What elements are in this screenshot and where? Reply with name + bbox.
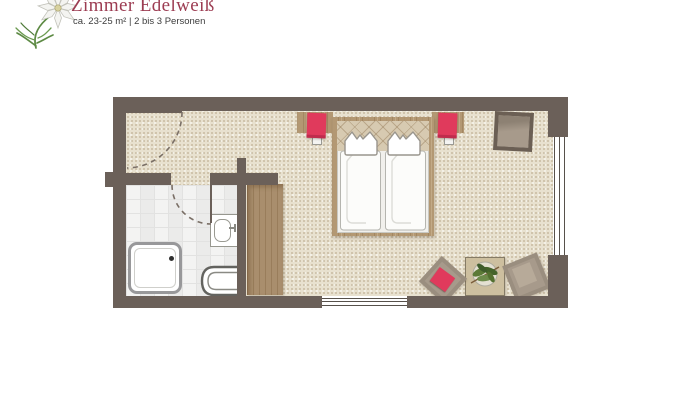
bedside-lamp-right <box>438 113 458 139</box>
luggage-stool <box>493 111 534 152</box>
faucet-icon <box>234 224 236 232</box>
page-subtitle: ca. 23-25 m² | 2 bis 3 Personen <box>73 16 205 27</box>
shower <box>128 242 182 294</box>
wall-bottom-left <box>113 296 322 308</box>
armchair-right <box>508 258 545 296</box>
pillow-left <box>345 132 377 155</box>
page-title: Zimmer Edelweiß <box>71 0 215 17</box>
potted-plant <box>466 255 504 295</box>
shower-drain <box>169 256 174 261</box>
bedside-lamp-left <box>307 113 327 139</box>
wall-pier-top-right <box>548 97 568 137</box>
wall-pier-bottom-right <box>548 255 568 308</box>
bathroom-partition-wall <box>237 158 246 296</box>
entrance-door-swing <box>118 106 190 178</box>
pillow-right <box>388 132 420 155</box>
bottom-wall-window <box>322 297 407 307</box>
edelweiss-flower-icon <box>6 0 76 52</box>
double-bed <box>337 121 429 233</box>
page: { "header": { "title": "Zimmer Edelweiß"… <box>0 0 680 408</box>
wardrobe <box>247 184 283 295</box>
bathroom-door-swing <box>166 179 218 231</box>
right-wall-window <box>553 137 566 255</box>
armchair-with-red-cushion <box>426 263 460 297</box>
shower-tray <box>134 248 176 288</box>
wall-bottom-right <box>407 296 568 308</box>
